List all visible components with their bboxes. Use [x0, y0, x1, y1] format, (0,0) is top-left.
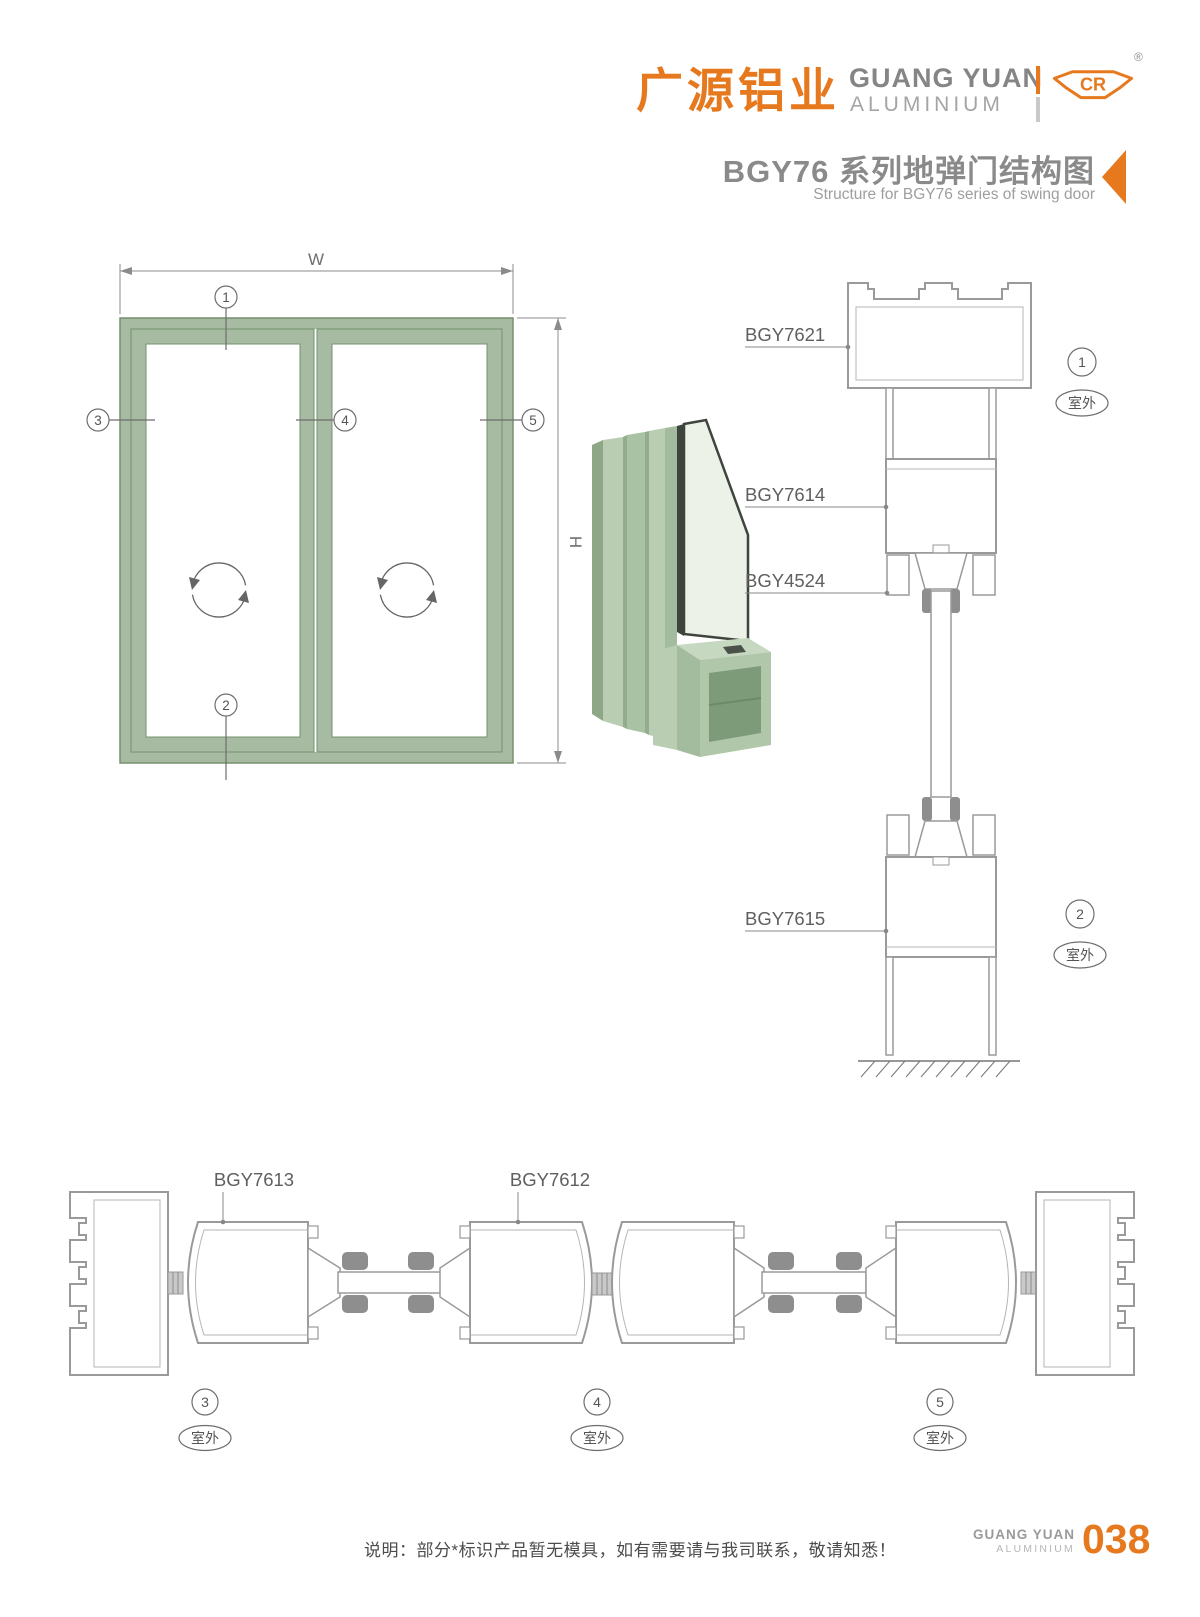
outdoor-label-4: 室外: [583, 1430, 611, 1446]
callout-3: 3: [94, 413, 102, 428]
catalog-page: { "header": { "logo_cn": "广源铝业", "logo_e…: [0, 0, 1200, 1617]
profile-bgy7621: [848, 283, 1031, 388]
cr-brand-letters: CR: [1080, 74, 1106, 94]
hinge-stile-right-leaf: [886, 1222, 1016, 1343]
width-label: W: [308, 250, 324, 269]
company-logo-chinese: 广源铝业: [636, 52, 840, 121]
glass-section-left: [338, 1272, 442, 1293]
page-number: 038: [1082, 1516, 1150, 1563]
label-bgy4524: BGY4524: [745, 570, 825, 591]
footer-brand-name: GUANG YUAN: [973, 1527, 1075, 1543]
page-title: BGY76 系列地弹门结构图: [723, 146, 1095, 191]
company-logo-english-sub: ALUMINIUM: [850, 93, 1004, 117]
glass-section-right: [762, 1272, 866, 1293]
jamb-connector-right: [1021, 1272, 1036, 1294]
label-bgy7614: BGY7614: [745, 484, 825, 505]
glass-panel-left: [146, 344, 300, 737]
section-callout-3: 3: [201, 1394, 209, 1410]
cr-brand-icon: CR: [1052, 58, 1134, 112]
page-subtitle: Structure for BGY76 series of swing door: [813, 186, 1095, 204]
footer-brand-sub: ALUMINIUM: [973, 1543, 1075, 1555]
label-bgy7612: BGY7612: [510, 1169, 590, 1190]
door-elevation-drawing: W H 1 2 3: [60, 250, 600, 810]
label-bgy7613: BGY7613: [214, 1169, 294, 1190]
callout-4: 4: [341, 413, 349, 428]
jamb-connector-left: [168, 1272, 183, 1294]
callout-5: 5: [529, 413, 537, 428]
door-bottom-rail: [887, 797, 995, 857]
vertical-section-drawing: BGY7621 BGY7614 BGY4524 BGY7615 1 室外 2 室…: [730, 255, 1170, 1085]
outdoor-label-3: 室外: [191, 1430, 219, 1446]
section-callout-2: 2: [1076, 906, 1084, 922]
section-callout-5: 5: [936, 1394, 944, 1410]
left-jamb-profile: [70, 1192, 168, 1375]
outdoor-label-5: 室外: [926, 1430, 954, 1446]
height-dimension: [517, 318, 566, 763]
section-callout-4: 4: [593, 1394, 601, 1410]
outdoor-label-1: 室外: [1068, 395, 1096, 411]
footer-brand: GUANG YUAN ALUMINIUM: [973, 1527, 1075, 1555]
ground-hatch: [858, 1061, 1020, 1077]
label-bgy7621: BGY7621: [745, 324, 825, 345]
profile-bgy7613: [188, 1222, 318, 1343]
glass-section: [931, 591, 951, 797]
right-jamb-profile: [1036, 1192, 1134, 1375]
outdoor-label-2: 室外: [1066, 947, 1094, 963]
door-frame: [120, 318, 513, 763]
profile-bgy7612: [460, 1222, 592, 1343]
meeting-stile-seal: [592, 1273, 612, 1295]
profile-bgy7615: [886, 857, 996, 1055]
width-dimension: [120, 264, 513, 314]
section-callout-1: 1: [1078, 354, 1086, 370]
footer-note: 说明：部分*标识产品暂无模具，如有需要请与我司联系，敬请知悉！: [364, 1536, 896, 1561]
glass-panel-right: [332, 344, 487, 737]
callout-2: 2: [222, 698, 230, 713]
registered-trademark: ®: [1134, 50, 1143, 64]
callout-1: 1: [222, 290, 230, 305]
label-bgy7615: BGY7615: [745, 908, 825, 929]
logo-divider-top: [1036, 66, 1040, 94]
profile-bgy7614: [886, 459, 996, 553]
company-logo-english: GUANG YUAN: [849, 63, 1043, 94]
meeting-stile-right-leaf: [612, 1222, 744, 1343]
title-triangle-icon: [1102, 150, 1126, 204]
horizontal-section-drawing: BGY7613 BGY7612 3 室外 4 室外 5 室外: [40, 1140, 1160, 1470]
logo-divider-bottom: [1036, 97, 1040, 122]
